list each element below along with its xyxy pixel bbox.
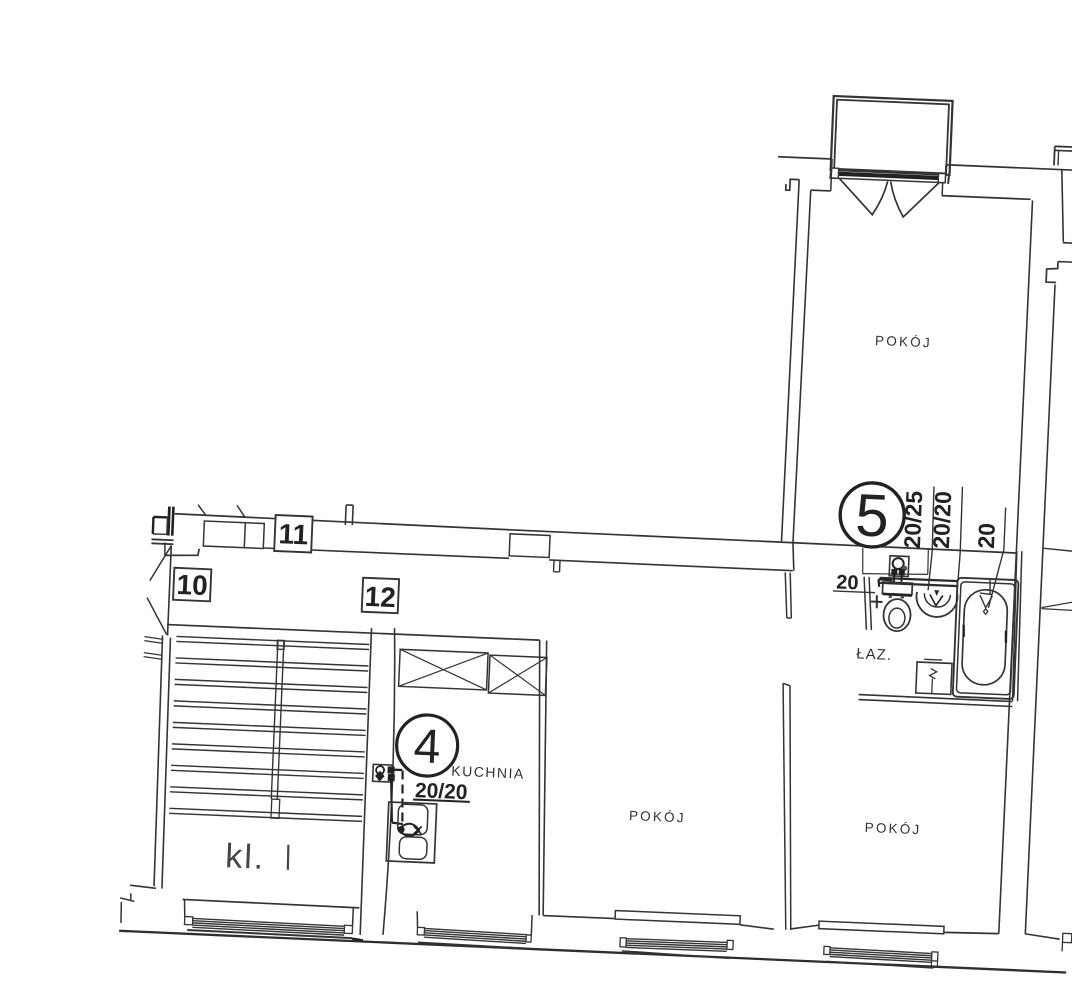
svg-text:ŁAZ.: ŁAZ. [856, 645, 892, 663]
svg-text:POKÓJ: POKÓJ [629, 808, 686, 825]
svg-text:20/20: 20/20 [928, 491, 956, 550]
svg-text:POKÓJ: POKÓJ [875, 333, 932, 350]
svg-text:kl.: kl. [225, 837, 267, 877]
svg-text:POKÓJ: POKÓJ [864, 820, 921, 837]
svg-text:5: 5 [854, 481, 890, 549]
svg-text:10: 10 [176, 569, 208, 601]
svg-text:KUCHNIA: KUCHNIA [451, 763, 525, 782]
svg-text:20: 20 [973, 522, 1000, 549]
svg-text:12: 12 [364, 581, 396, 613]
svg-text:4: 4 [413, 720, 442, 774]
svg-text:20/25: 20/25 [899, 490, 927, 549]
svg-text:11: 11 [278, 518, 309, 550]
